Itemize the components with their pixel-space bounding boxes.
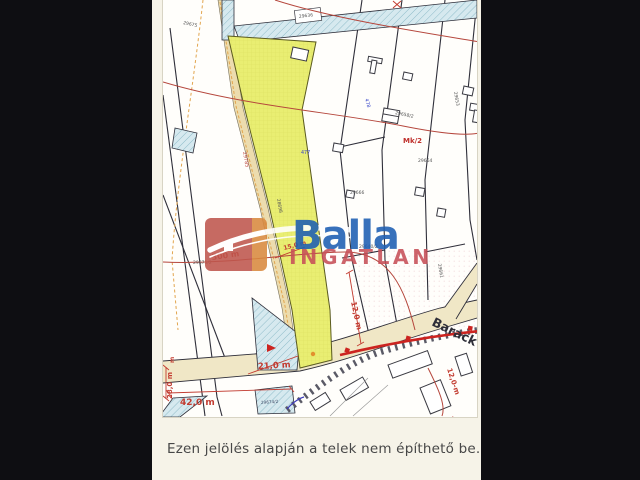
orange-point xyxy=(311,352,315,356)
map-label: 29664 xyxy=(418,158,432,164)
map-label: 42,0 m xyxy=(180,398,215,408)
image-caption: Ezen jelölés alapján a telek nem építhet… xyxy=(167,441,467,457)
map-label: 21,0 m xyxy=(258,360,291,372)
letterbox-right xyxy=(481,0,640,480)
image-viewer-panel: 300 m15,0 m21,0 m42,0 m28,0 mm12,0 m12,0… xyxy=(152,0,481,480)
map-label: 29640/2 xyxy=(359,244,378,250)
map-label: Mk/2 xyxy=(403,137,422,145)
map-label: m xyxy=(169,357,176,363)
map-label: 29666 xyxy=(350,190,364,196)
letterbox-left xyxy=(0,0,152,480)
map-label: 477 xyxy=(301,150,310,156)
map-label: Lke xyxy=(447,416,461,417)
map-label: 29675/2 xyxy=(193,260,212,266)
map-label: 28,0 m xyxy=(166,372,174,399)
cadastral-map-svg: 300 m15,0 m21,0 m42,0 m28,0 mm12,0 m12,0… xyxy=(163,0,477,417)
cadastral-map-image[interactable]: 300 m15,0 m21,0 m42,0 m28,0 mm12,0 m12,0… xyxy=(163,0,477,417)
